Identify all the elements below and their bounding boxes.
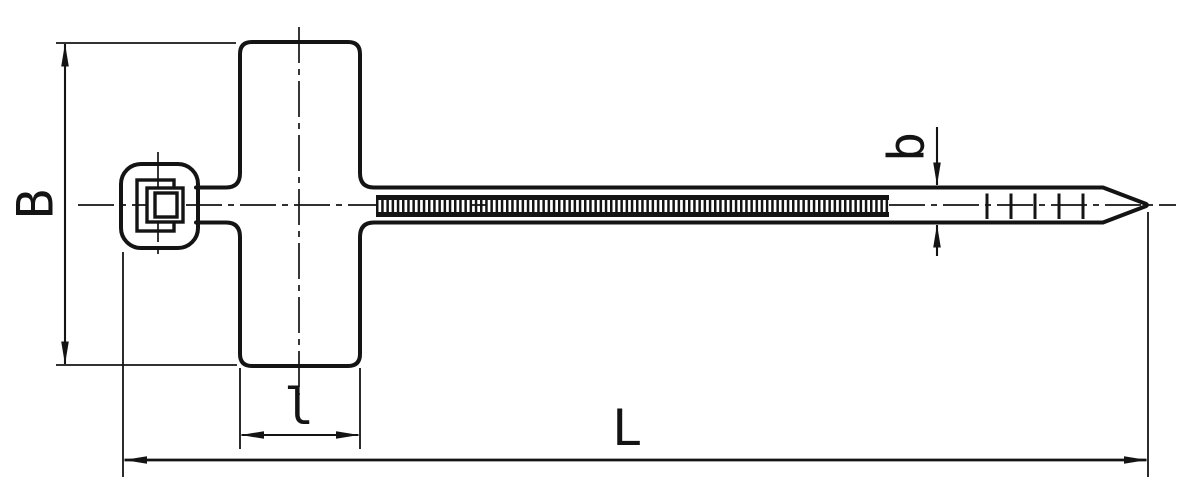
serration-band [376, 198, 889, 215]
cable-tie-technical-drawing: B l L b [0, 0, 1200, 500]
dimension-label-l: l [284, 378, 314, 436]
dimension-l: l [240, 368, 360, 449]
tip-tick-marks [987, 194, 1083, 220]
dimension-label-b: b [878, 132, 936, 162]
dimension-b: b [878, 127, 938, 256]
tie-head-group [121, 164, 198, 248]
dimension-L: L [123, 212, 1148, 477]
plate-and-strap-outline [196, 42, 1147, 366]
dimension-label-L: L [612, 399, 642, 457]
drawing-canvas: B l L b [0, 0, 1200, 500]
head-lock-inner [155, 193, 177, 217]
dimension-label-B: B [7, 189, 65, 219]
